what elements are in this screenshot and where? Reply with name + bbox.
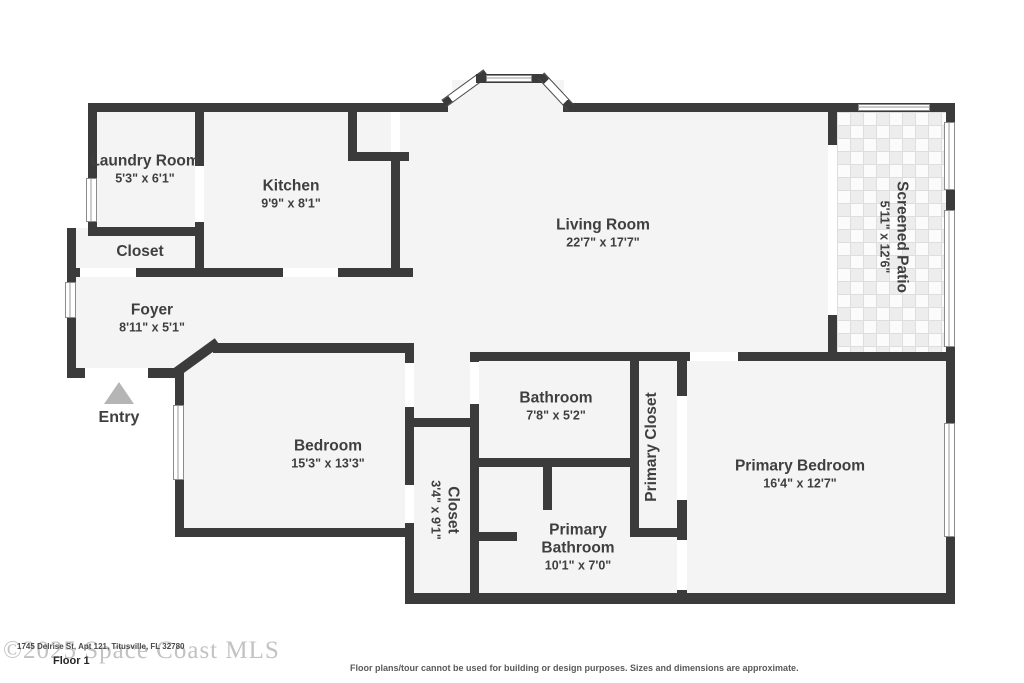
entry-label: Entry: [99, 409, 140, 427]
room-label-primary-bedroom: Primary Bedroom 16'4" x 12'7": [735, 458, 865, 493]
window-foyer: [65, 282, 76, 318]
room-dims: 10'1" x 7'0": [513, 558, 643, 575]
window-primary-bedroom: [944, 423, 955, 537]
room-label-laundry: Laundry Room 5'3" x 6'1": [90, 153, 200, 188]
room-name: Bedroom: [291, 438, 364, 456]
room-dims: 5'3" x 6'1": [90, 171, 200, 188]
listing-address: 1745 Delrise St, Apt 121, Titusville, FL…: [17, 642, 185, 651]
door-opening-entry: [85, 368, 148, 378]
room-name: Kitchen: [261, 178, 321, 196]
room-dims: 5'11" x 12'6": [876, 181, 893, 293]
wall-bedroom-top: [213, 343, 414, 353]
floor-plan: Laundry Room 5'3" x 6'1" Kitchen 9'9" x …: [0, 0, 1024, 683]
wall-bedroom-bottom: [175, 528, 414, 537]
door-opening-bedroom-closet: [405, 485, 414, 523]
wall-bathroom-right: [630, 352, 639, 537]
room-label-bedroom-closet: Closet 3'4" x 9'1": [427, 480, 462, 540]
wall-patio-left-top: [828, 107, 837, 145]
door-opening-primary-bathroom: [677, 540, 687, 590]
window-patio-right-upper: [944, 122, 955, 190]
room-label-foyer: Foyer 8'11" x 5'1": [119, 302, 185, 337]
room-label-hall-closet: Closet: [116, 243, 163, 261]
door-opening-hall-closet: [80, 268, 136, 277]
room-label-screened-patio: Screened Patio 5'11" x 12'6": [876, 181, 911, 293]
room-dims: 7'8" x 5'2": [519, 408, 592, 425]
room-name: Bathroom: [519, 390, 592, 408]
kitchen-passthrough-opening: [391, 112, 400, 152]
room-label-kitchen: Kitchen 9'9" x 8'1": [261, 178, 321, 213]
window-patio-top: [858, 104, 930, 111]
wall-corridor-top: [405, 418, 479, 427]
wall-primary-bath-stub-left: [470, 532, 517, 541]
room-name: Laundry Room: [90, 153, 200, 171]
door-opening-primary-closet: [677, 396, 687, 500]
interior-fill-main: [88, 103, 955, 361]
room-dims: 22'7" x 17'7": [556, 235, 650, 252]
floor-label: Floor 1: [53, 655, 90, 667]
wall-laundry-bottom: [88, 227, 204, 236]
entry-arrow-icon: [104, 382, 134, 404]
window-bay-top: [486, 75, 532, 82]
window-bedroom: [173, 405, 184, 480]
room-name: Primary Bedroom: [735, 458, 865, 476]
wall-top-left: [88, 103, 448, 112]
wall-primary-bath-stub: [543, 467, 552, 510]
wall-south: [405, 593, 955, 604]
door-opening-bedroom: [405, 363, 414, 407]
room-label-primary-bathroom: Primary Bathroom 10'1" x 7'0": [513, 522, 643, 575]
patio-slider-opening: [828, 145, 837, 315]
window-patio-right-lower: [944, 210, 955, 347]
disclaimer-text: Floor plans/tour cannot be used for buil…: [350, 663, 799, 673]
door-opening-primary-bedroom: [690, 352, 738, 361]
room-name: Screened Patio: [892, 181, 910, 293]
room-dims: 9'9" x 8'1": [261, 196, 321, 213]
room-label-primary-closet: Primary Closet: [643, 392, 661, 501]
room-name: Closet: [116, 243, 163, 261]
room-label-bedroom: Bedroom 15'3" x 13'3": [291, 438, 364, 473]
room-dims: 8'11" x 5'1": [119, 320, 185, 337]
room-name: Primary Bathroom: [513, 522, 643, 558]
room-name: Closet: [443, 480, 461, 540]
wall-bathroom-bottom: [470, 458, 639, 467]
room-dims: 15'3" x 13'3": [291, 456, 364, 473]
room-name: Primary Closet: [643, 392, 661, 501]
room-name: Living Room: [556, 217, 650, 235]
room-dims: 16'4" x 12'7": [735, 476, 865, 493]
room-label-bathroom: Bathroom 7'8" x 5'2": [519, 390, 592, 425]
door-opening-bathroom: [470, 362, 479, 404]
wall-kitchen-bottom-right: [338, 268, 413, 277]
room-name: Foyer: [119, 302, 185, 320]
room-dims: 3'4" x 9'1": [427, 480, 444, 540]
room-label-living-room: Living Room 22'7" x 17'7": [556, 217, 650, 252]
wall-kitchen-right: [391, 152, 400, 277]
wall-kitchen-bottom-left: [204, 268, 283, 277]
door-opening-kitchen: [283, 268, 338, 277]
